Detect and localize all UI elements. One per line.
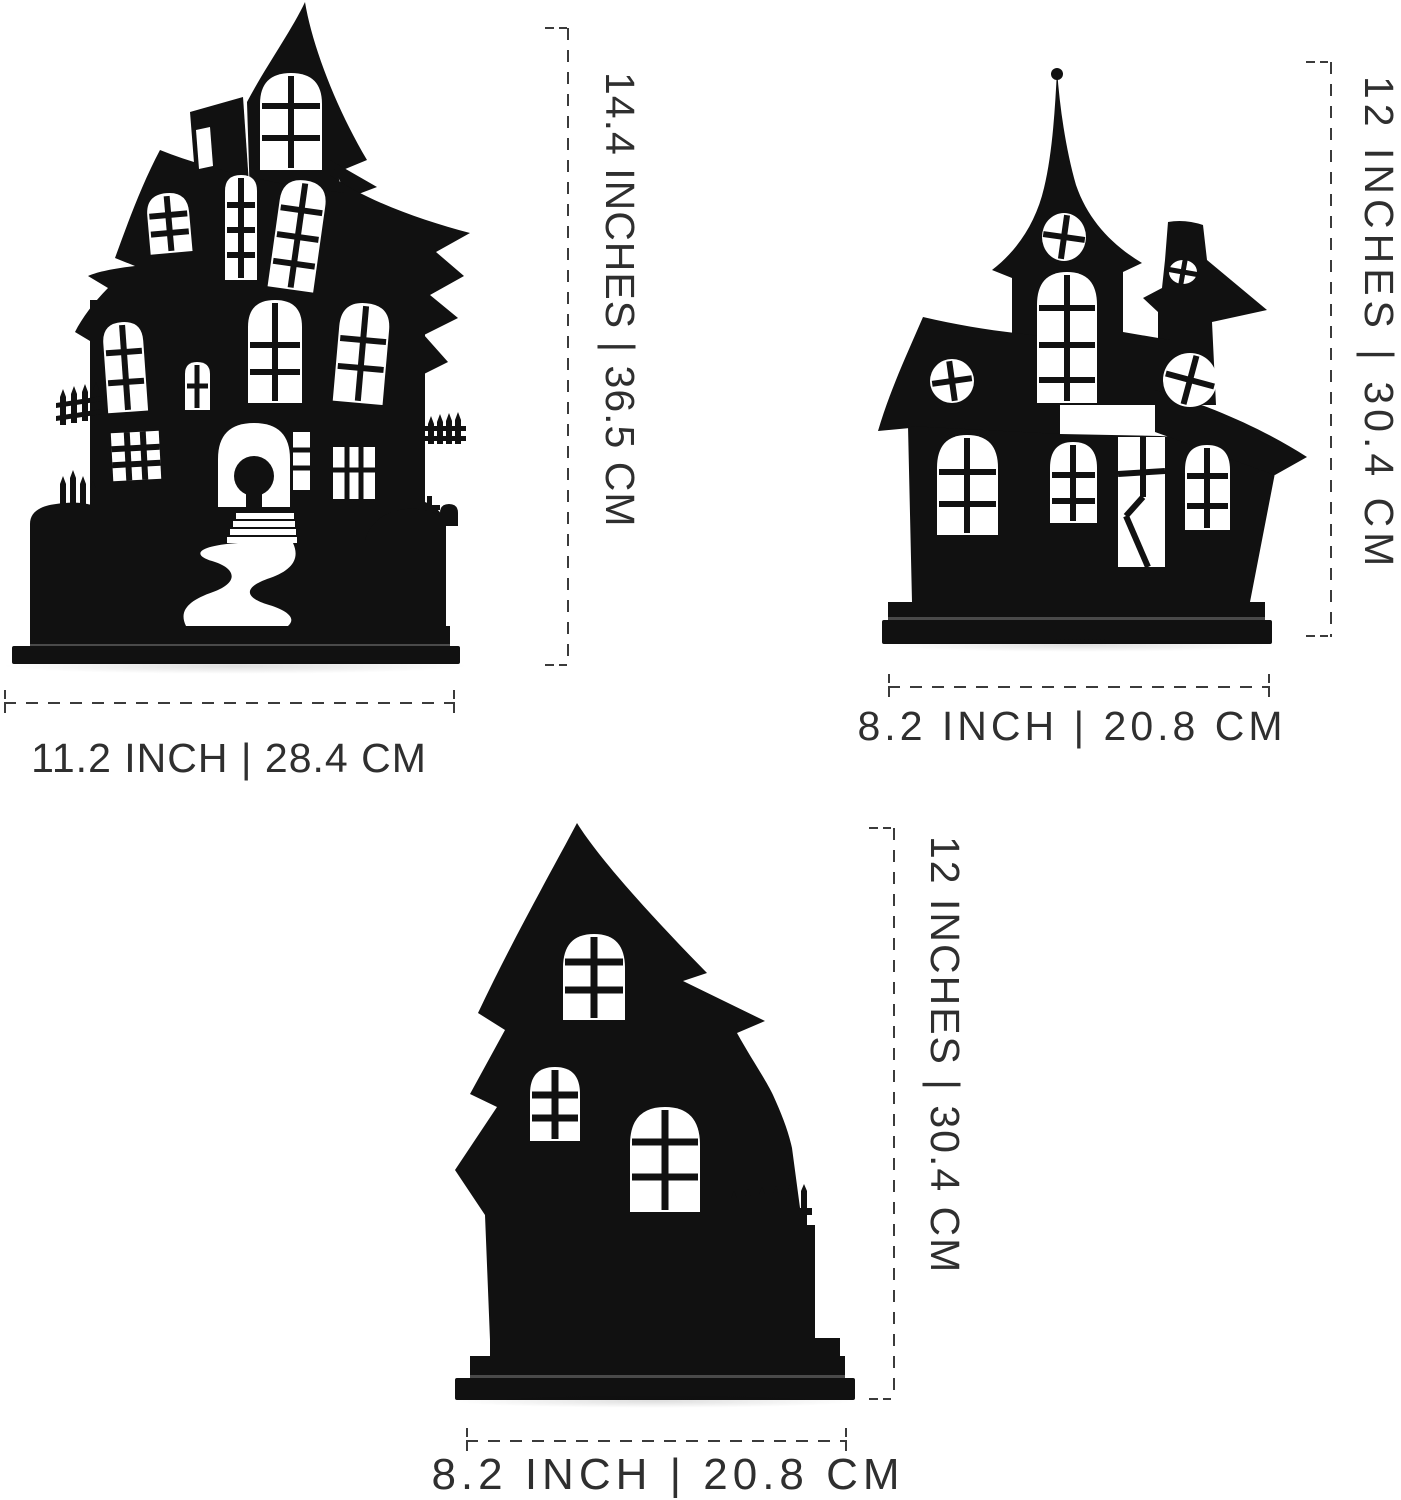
house-spire-height-line xyxy=(1330,62,1332,637)
house-spire-width-line xyxy=(888,686,1270,688)
house-crooked-width-line xyxy=(466,1440,847,1442)
house-large-height-cap-top xyxy=(545,27,567,29)
house-crooked-shadow xyxy=(450,1394,860,1408)
house-crooked-width-label: 8.2 INCH | 20.8 CM xyxy=(398,1450,938,1500)
house-large-width-line xyxy=(4,702,455,704)
house-crooked-height-label: 12 INCHES | 30.4 CM xyxy=(920,836,970,1306)
house-large-height-label: 14.4 INCHES | 36.5 CM xyxy=(595,72,645,517)
house-spire-height-label: 12 INCHES | 30.4 CM xyxy=(1354,76,1401,591)
house-large-width-tick-left xyxy=(4,690,6,714)
house-spire-shadow xyxy=(880,638,1280,652)
product-dimension-diagram: 14.4 INCHES | 36.5 CM 11.2 INCH | 28.4 C… xyxy=(0,0,1401,1500)
house-large-width-label: 11.2 INCH | 28.4 CM xyxy=(4,735,454,782)
haunted-house-large-figure xyxy=(0,0,480,670)
house-large-shadow xyxy=(0,658,470,674)
house-large-height-line xyxy=(567,28,569,666)
house-spire-width-tick-left xyxy=(888,674,890,698)
house-crooked-height-line xyxy=(893,828,895,1400)
house-crooked-height-cap-top xyxy=(869,827,891,829)
haunted-house-crooked-figure xyxy=(420,820,900,1430)
haunted-house-crooked-silhouette xyxy=(420,820,900,1430)
house-spire-width-tick-right xyxy=(1268,674,1270,698)
haunted-house-spire-figure xyxy=(860,60,1330,660)
haunted-house-large-silhouette xyxy=(0,0,480,670)
house-spire-height-cap-top xyxy=(1306,61,1328,63)
house-large-height-cap-bottom xyxy=(545,664,567,666)
house-spire-width-label: 8.2 INCH | 20.8 CM xyxy=(822,703,1322,750)
haunted-house-spire-silhouette xyxy=(860,60,1330,660)
house-crooked-width-tick-left xyxy=(466,1428,468,1452)
house-crooked-width-tick-right xyxy=(845,1428,847,1452)
house-spire-height-cap-bottom xyxy=(1306,635,1328,637)
house-crooked-height-cap-bottom xyxy=(869,1398,891,1400)
house-large-width-tick-right xyxy=(453,690,455,714)
